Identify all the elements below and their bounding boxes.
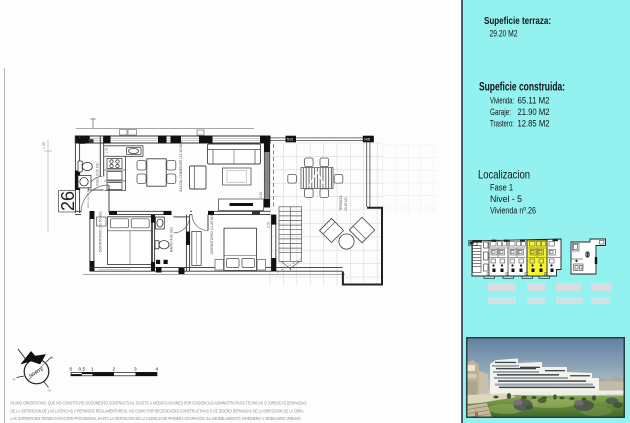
- svg-text:Nivel - 5: Nivel - 5: [490, 194, 522, 204]
- svg-text:Supeficie construida:: Supeficie construida:: [479, 82, 565, 94]
- svg-text:21.90 M2: 21.90 M2: [518, 107, 550, 117]
- svg-text:DE LA OBTENCION DE LAS LICENCI: DE LA OBTENCION DE LAS LICENCIAS Y PERMI…: [11, 408, 305, 413]
- svg-text:Trastero:: Trastero:: [490, 118, 514, 128]
- svg-text:Garaje:: Garaje:: [490, 107, 511, 117]
- svg-text:PLANO ORIENTATIVO: QUE NO CONS: PLANO ORIENTATIVO: QUE NO CONSTITUYE DOC…: [11, 401, 307, 406]
- svg-text:Vivienda:: Vivienda:: [490, 95, 514, 105]
- svg-text:LAS SUPERFICIES TIENEN CARACTE: LAS SUPERFICIES TIENEN CARACTER PROVISIO…: [11, 416, 301, 421]
- svg-text:Supeficie terraza:: Supeficie terraza:: [484, 15, 551, 27]
- svg-text:Fase 1: Fase 1: [490, 183, 513, 193]
- svg-text:Localizacion: Localizacion: [478, 168, 530, 182]
- svg-text:Vivienda nº.26: Vivienda nº.26: [490, 206, 536, 216]
- svg-text:65.11 M2: 65.11 M2: [518, 95, 550, 105]
- svg-text:12.85 M2: 12.85 M2: [518, 118, 550, 128]
- svg-text:29.20 M2: 29.20 M2: [490, 29, 518, 39]
